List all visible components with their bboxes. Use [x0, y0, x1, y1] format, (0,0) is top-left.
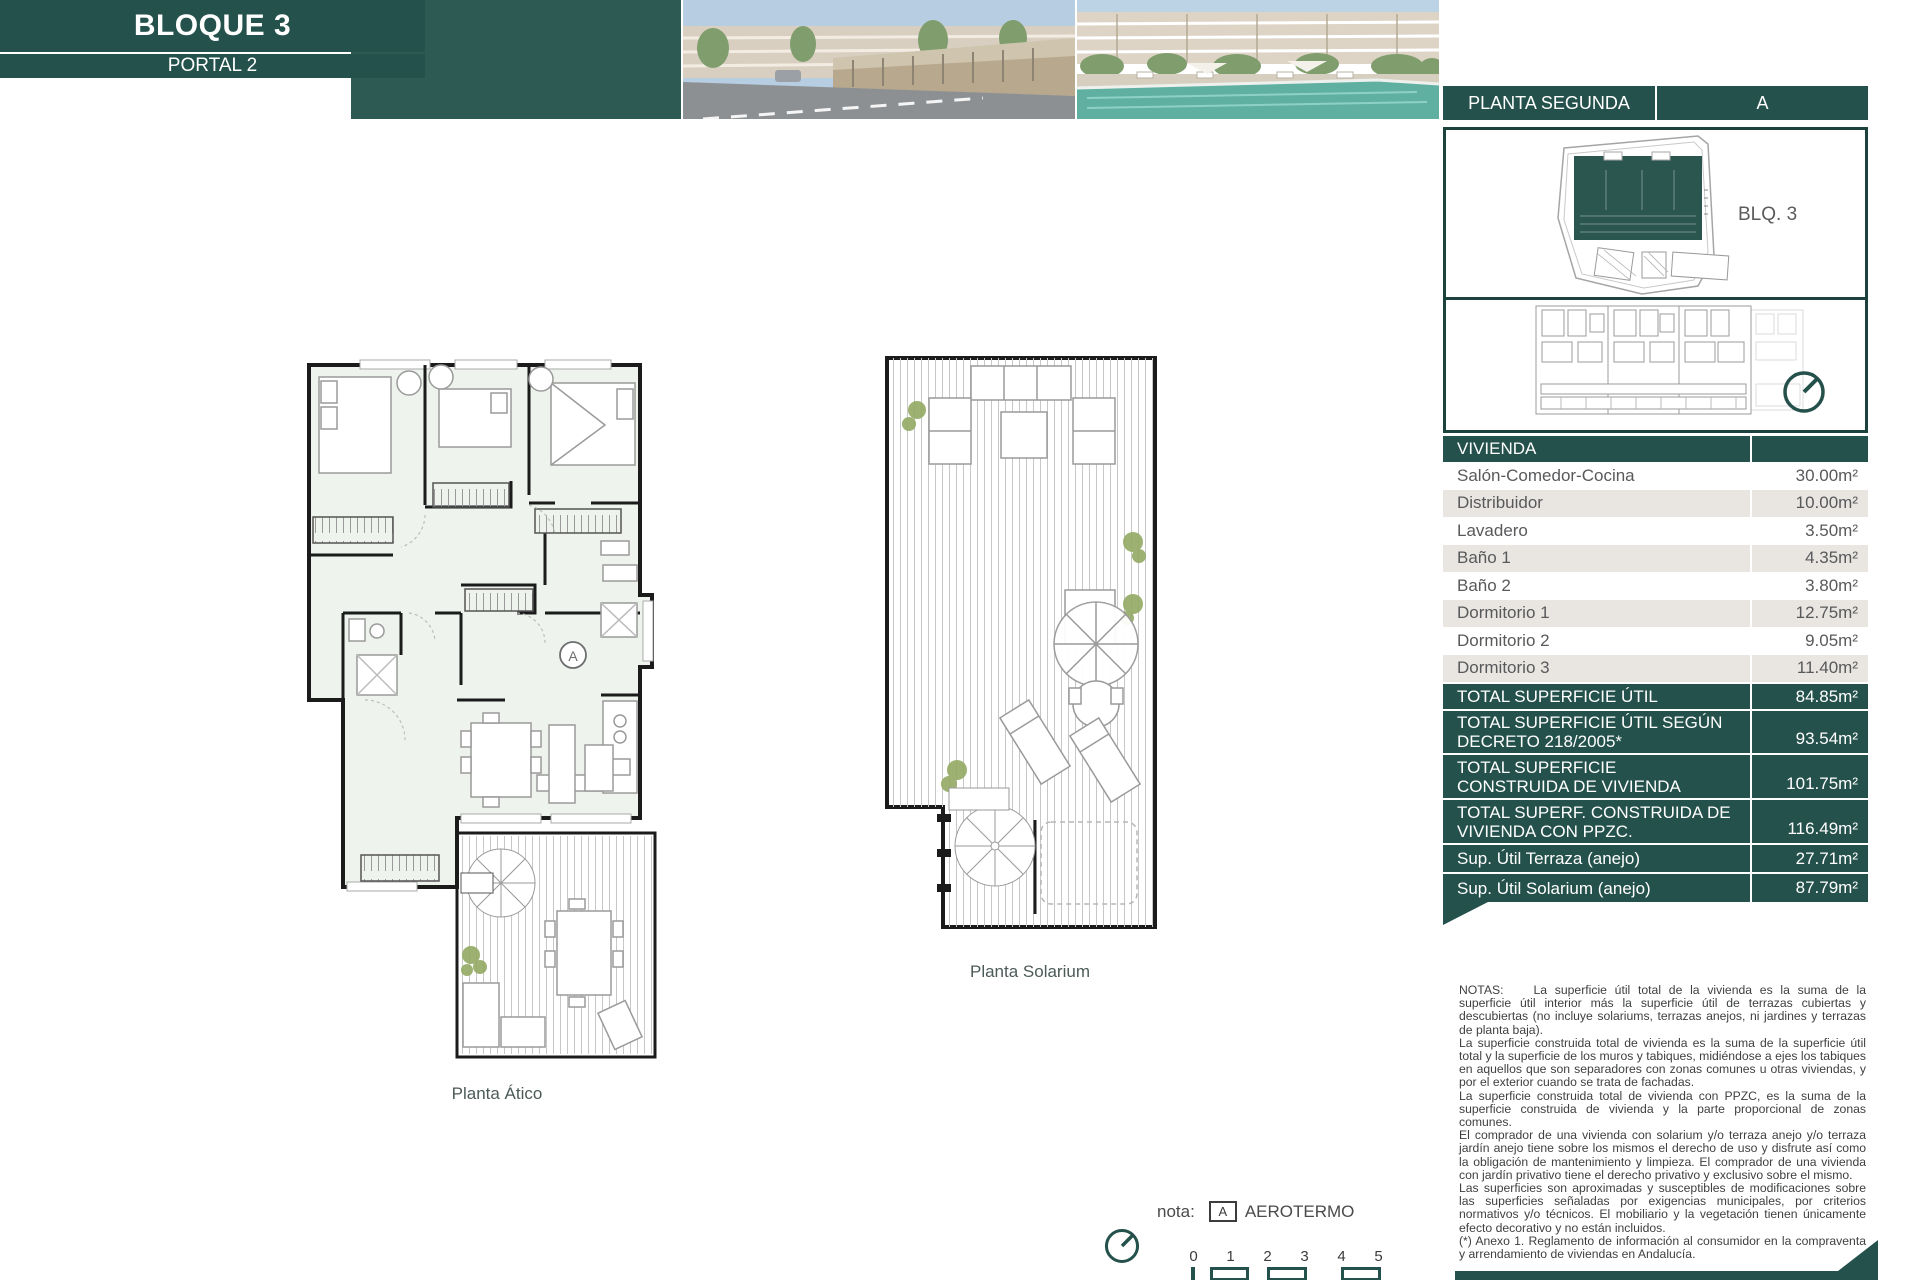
table-row: Salón-Comedor-Cocina30.00m² [1443, 462, 1868, 490]
notes-block: NOTAS:La superficie útil total de la viv… [1459, 984, 1866, 1261]
table-row: Lavadero3.50m² [1443, 517, 1868, 545]
corner-triangle [1838, 1240, 1878, 1271]
atico-floor-plan: A [305, 355, 658, 1083]
table-row: Baño 23.80m² [1443, 572, 1868, 600]
entrance-photo [683, 0, 1075, 119]
site-plan-panel: BLQ. 3 [1443, 127, 1868, 300]
total-row: Sup. Útil Solarium (anejo)87.79m² [1443, 874, 1868, 902]
scale-bar: 0 1 2 3 4 5 [1175, 1248, 1405, 1280]
total-row: TOTAL SUPERFICIE CONSTRUIDA DE VIVIENDA1… [1443, 755, 1868, 798]
table-column-divider [1750, 436, 1752, 902]
terrace-dining-set [545, 899, 623, 1007]
atico-terrace [457, 833, 655, 1057]
site-plan-drawing [1558, 136, 1729, 294]
table-section-title: VIVIENDA [1443, 439, 1536, 459]
total-row: TOTAL SUPERFICIE ÚTIL SEGÚN DECRETO 218/… [1443, 711, 1868, 753]
scale-segment [1267, 1267, 1307, 1280]
table-row: Dormitorio 112.75m² [1443, 600, 1868, 628]
table-section-header: VIVIENDA [1443, 436, 1868, 462]
notes-paragraph: (*) Anexo 1. Reglamento de información a… [1459, 1235, 1866, 1261]
total-row: TOTAL SUPERFICIE ÚTIL84.85m² [1443, 684, 1868, 709]
atico-plan-label: Planta Ático [397, 1084, 597, 1104]
solarium-plan-label: Planta Solarium [930, 962, 1130, 982]
brochure-page: BLOQUE 3 PORTAL 2 PLANTA SEGUNDA A [0, 0, 1920, 1280]
svg-text:A: A [568, 648, 578, 664]
aerotermo-legend: nota: A AEROTERMO [1157, 1201, 1354, 1222]
portal-subtitle: PORTAL 2 [0, 54, 425, 78]
solarium-floor-plan [883, 352, 1163, 937]
compass-icon [1103, 1227, 1141, 1270]
building-floor-key [1536, 306, 1803, 414]
floor-unit-row: PLANTA SEGUNDA A [1443, 86, 1868, 120]
table-row: Distribuidor10.00m² [1443, 490, 1868, 518]
portal-text: PORTAL 2 [168, 55, 257, 77]
table-row: Baño 14.35m² [1443, 545, 1868, 573]
site-plan-block-label: BLQ. 3 [1738, 204, 1797, 225]
total-row: Sup. Útil Terraza (anejo)27.71m² [1443, 845, 1868, 872]
areas-table: Salón-Comedor-Cocina30.00m² Distribuidor… [1443, 462, 1868, 682]
fold-triangle [1443, 902, 1488, 925]
block-title: BLOQUE 3 [0, 0, 425, 52]
notes-paragraph: La superficie construida total de vivien… [1459, 1090, 1866, 1130]
aerotermo-text: AEROTERMO [1245, 1202, 1355, 1222]
total-row: TOTAL SUPERF. CONSTRUIDA DE VIVIENDA CON… [1443, 800, 1868, 843]
notes-paragraph: NOTAS:La superficie útil total de la viv… [1459, 984, 1866, 1037]
notes-heading: NOTAS: [1459, 983, 1533, 997]
nota-label: nota: [1157, 1202, 1195, 1222]
block-title-text: BLOQUE 3 [134, 9, 291, 43]
footer-band [1455, 1271, 1878, 1280]
table-row: Dormitorio 311.40m² [1443, 655, 1868, 683]
floor-cell: PLANTA SEGUNDA [1443, 86, 1655, 120]
notes-paragraph: La superficie construida total de vivien… [1459, 1037, 1866, 1090]
scale-zero-tick [1191, 1267, 1195, 1280]
aerotermo-marker: A [560, 642, 586, 668]
scale-segment [1341, 1267, 1381, 1280]
unit-cell: A [1657, 86, 1868, 120]
pool-photo [1077, 0, 1439, 119]
scale-segment [1210, 1267, 1249, 1280]
building-key-panel [1443, 300, 1868, 433]
notes-paragraph: Las superficies son aproximadas y suscep… [1459, 1182, 1866, 1235]
notes-paragraph: El comprador de una vivienda con solariu… [1459, 1129, 1866, 1182]
totals-table: TOTAL SUPERFICIE ÚTIL84.85m² TOTAL SUPER… [1443, 684, 1868, 902]
table-row: Dormitorio 29.05m² [1443, 627, 1868, 655]
scale-tick-labels: 0 1 2 3 4 5 [1175, 1248, 1405, 1265]
aerotermo-marker: A [1209, 1201, 1237, 1222]
